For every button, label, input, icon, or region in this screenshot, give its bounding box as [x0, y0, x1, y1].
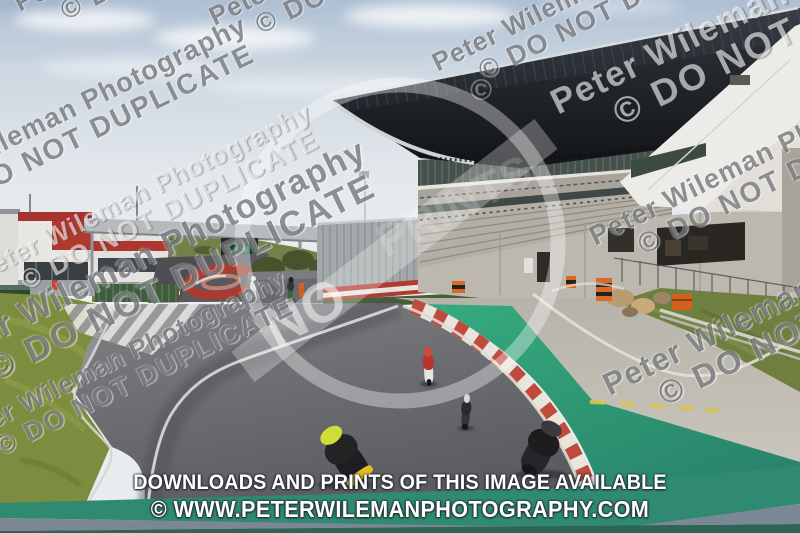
flag-point [52, 280, 58, 290]
racetrack-photo [0, 0, 800, 533]
wall-sign [524, 258, 533, 273]
photo-canvas: © NO PRINTS Peter Wileman Photography© D… [0, 0, 800, 533]
orange-post [299, 283, 304, 297]
window-opening [608, 228, 634, 252]
orange-barrier [672, 294, 692, 310]
vent [730, 75, 750, 85]
concrete-tower [782, 148, 800, 292]
door-opening [537, 252, 550, 282]
